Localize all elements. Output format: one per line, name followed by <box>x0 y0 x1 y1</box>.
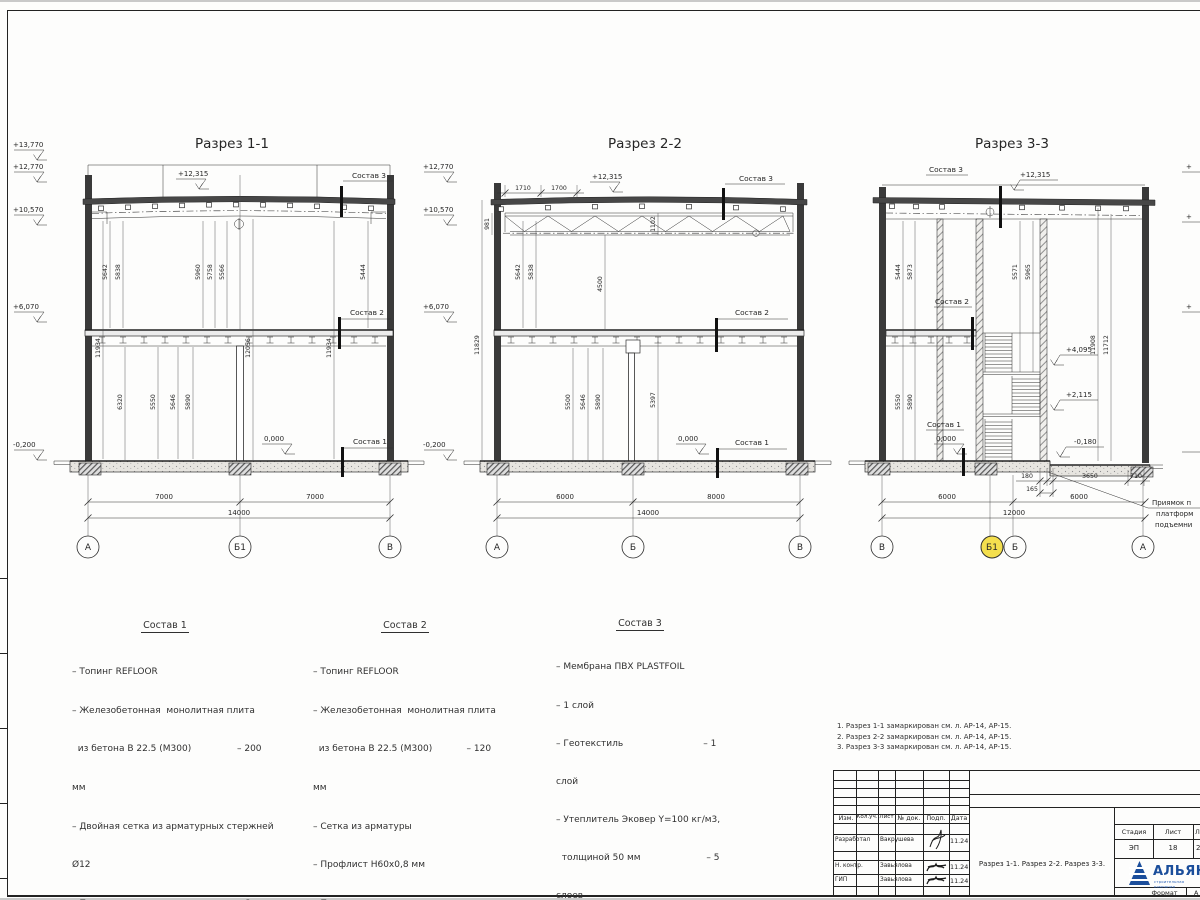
section-title: Разрез 1-1 <box>195 136 269 152</box>
callout-label: Состав 1 <box>353 437 387 446</box>
tb-col-header: Дата <box>949 814 969 822</box>
composition-line: слоев <box>556 890 751 900</box>
dim-label: 6000 <box>556 493 574 501</box>
roof-slab <box>491 197 807 205</box>
axis-bubble-label: Б <box>1012 543 1018 553</box>
elevation-mark-cut: + <box>1186 213 1192 221</box>
elevation-mark: -0,200 <box>13 441 36 449</box>
dim-label: 5890 <box>595 394 602 410</box>
column <box>629 353 635 463</box>
column <box>237 346 244 463</box>
callout-label: Состав 2 <box>935 297 969 306</box>
dim-label: 1710 <box>515 185 531 192</box>
dim-label: 5444 <box>895 264 902 280</box>
callout-label: Состав 2 <box>350 308 384 317</box>
dim-label: 5873 <box>907 264 914 280</box>
composition-line: Ø12 <box>72 859 274 872</box>
dim-label: 8000 <box>707 493 725 501</box>
dim-label: 7000 <box>155 493 173 501</box>
dim-label: 1102 <box>650 216 657 232</box>
axis-bubble-label: А <box>1140 543 1147 553</box>
dim-label: 5890 <box>907 394 914 410</box>
elevation-mark-cut: + <box>1186 303 1192 311</box>
pit-note: подъемни <box>1155 521 1192 529</box>
column-cap <box>626 340 640 353</box>
note-line: 1. Разрез 1-1 замаркирован см. л. АР-14,… <box>837 721 1011 732</box>
composition-line: из бетона В 22.5 (М300) – 120 <box>313 743 496 756</box>
title-block: Изм. Кол.уч. Лист № док. Подп. Дата Разр… <box>833 770 1200 897</box>
composition-line: мм <box>313 782 496 795</box>
dim-label: 11934 <box>326 338 333 358</box>
wall <box>976 219 983 463</box>
foundation <box>487 463 509 475</box>
callout-bar <box>999 186 1002 228</box>
dim-label: 11934 <box>95 338 102 358</box>
callout-bar <box>716 448 719 478</box>
composition-line: слой <box>556 776 751 789</box>
elevation-mark: +13,770 <box>13 141 43 149</box>
elevation-mark: -0,180 <box>1074 438 1097 446</box>
elevation-mark: +10,570 <box>13 206 43 214</box>
elevation-mark: +2,115 <box>1066 391 1092 399</box>
composition-line: – Профлист Н60х0,8 мм <box>313 859 496 872</box>
dim-label: 12056 <box>245 338 252 358</box>
foundation <box>786 463 808 475</box>
tb-sheet-value: 18 <box>1153 844 1193 852</box>
logo-subtitle: строительная компания <box>1154 879 1200 889</box>
dim-label: 5642 <box>515 264 522 280</box>
tb-date: 11.24 <box>950 877 968 885</box>
elevation-mark: +12,770 <box>13 163 43 171</box>
signature <box>925 861 949 874</box>
dim-label: 14000 <box>637 509 659 517</box>
tb-stage-label: Стадия <box>1115 828 1153 836</box>
elevation-mark: +12,770 <box>423 163 453 171</box>
elevation-mark: +4,095 <box>1066 346 1092 354</box>
tb-date: 11.24 <box>950 837 968 845</box>
section-title: Разрез 2-2 <box>608 136 682 152</box>
column <box>879 187 886 463</box>
pit-note: платформ <box>1156 510 1193 518</box>
column <box>797 183 804 463</box>
elevation-mark: 0,000 <box>264 435 284 443</box>
signature <box>926 827 948 851</box>
callout-label: Состав 3 <box>929 165 963 174</box>
floor-slab <box>886 330 976 336</box>
tb-sheets-value: 2 <box>1196 844 1200 852</box>
floor-slab <box>85 330 393 336</box>
tb-role: ГИП <box>835 877 879 883</box>
axis-bubble-label: В <box>879 543 885 553</box>
axis-bubble-label: Б1 <box>986 543 998 553</box>
callout-label: Состав 2 <box>735 308 769 317</box>
dim-label: 5646 <box>170 394 177 410</box>
composition-line: – Утеплитель Эковер Y=100 кг/м3, <box>556 814 751 827</box>
note-line: 3. Разрез 3-3 замаркирован см. л. АР-14,… <box>837 742 1011 753</box>
dim-label: 5397 <box>650 392 657 408</box>
callout-bar <box>715 318 718 352</box>
stair <box>983 333 1040 461</box>
dim-label: 6000 <box>938 493 956 501</box>
ground-slab <box>865 461 1050 472</box>
composition-line: – Топинг REFLOOR <box>72 666 274 679</box>
composition-1: – Топинг REFLOOR – Железобетонная моноли… <box>72 640 274 900</box>
dim-label: 5571 <box>1012 264 1019 280</box>
axis-bubble-label: А <box>85 543 92 553</box>
dim-label: 12000 <box>1003 509 1025 517</box>
composition-line: – Железобетонная монолитная плита <box>72 705 274 718</box>
tb-format-value: А <box>1194 889 1200 897</box>
dim-label: 5890 <box>185 394 192 410</box>
note-line: 2. Разрез 2-2 замаркирован см. л. АР-14,… <box>837 732 1011 743</box>
composition-line: – Геотекстиль – 1 <box>556 738 751 751</box>
dim-label: 5642 <box>102 264 109 280</box>
dim-label: 5550 <box>895 394 902 410</box>
section-title: Разрез 3-3 <box>975 136 1049 152</box>
dim-label: 5566 <box>219 264 226 280</box>
tb-stage-value: ЭП <box>1115 844 1153 852</box>
column <box>1142 187 1149 463</box>
section-3-3: Разрез 3-3 Приямок п платформ подъемни 1… <box>849 136 1200 558</box>
callout-bar <box>341 447 344 477</box>
dim-label: 5758 <box>207 264 214 280</box>
tb-name: Завьялова <box>880 863 922 869</box>
composition-2-title: Состав 2 <box>330 620 480 631</box>
composition-2: – Топинг REFLOOR – Железобетонная моноли… <box>313 640 496 900</box>
callout-label: Состав 1 <box>735 438 769 447</box>
callout-bar <box>338 317 341 349</box>
tb-col-header: № док. <box>895 814 923 822</box>
tb-sheets-label: Листов <box>1195 828 1200 836</box>
dim-label: 165 <box>1026 486 1038 493</box>
truss-diagonals <box>505 216 790 232</box>
axis-bubble-label: Б1 <box>234 543 246 553</box>
dim-label: 11712 <box>1103 335 1110 355</box>
composition-3: – Мембрана ПВХ PLASTFOIL – 1 слой – Геот… <box>556 636 751 900</box>
elevation-mark: +12,315 <box>1020 171 1050 179</box>
tb-name: Завьялова <box>880 877 922 883</box>
callout-bar <box>971 317 974 350</box>
callout-bar <box>340 186 343 217</box>
section-2-2: Разрез 2-2 6000 8000 14000 А Б В 1710 17… <box>423 136 831 558</box>
logo-icon <box>1128 860 1151 886</box>
dim-label: 5965 <box>1025 264 1032 280</box>
composition-line: – Сетка из арматуры <box>313 821 496 834</box>
drawing-sheet: Разрез 1-1 7000 7000 14000 А Б1 В 5642 5… <box>0 0 1200 900</box>
elevation-mark: +6,070 <box>423 303 449 311</box>
dim-label: 3650 <box>1082 473 1098 480</box>
dim-label: 981 <box>484 218 491 230</box>
roof-slab <box>83 196 395 204</box>
elevation-mark: +12,315 <box>178 170 208 178</box>
tb-col-header: Изм. <box>836 814 856 822</box>
composition-line: – Двойная сетка из арматурных стержней <box>72 821 274 834</box>
tb-sheet-label: Лист <box>1153 828 1193 836</box>
dim-label: 7000 <box>306 493 324 501</box>
column <box>85 175 92 463</box>
dim-label: 5444 <box>360 264 367 280</box>
elevation-mark-cut: + <box>1186 163 1192 171</box>
elevation-mark: +6,070 <box>13 303 39 311</box>
elevation-mark: 0,000 <box>936 435 956 443</box>
ground-slab <box>480 461 815 472</box>
dim-label: 5646 <box>580 394 587 410</box>
callout-label: Состав 3 <box>352 171 386 180</box>
elevation-mark: +12,315 <box>592 173 622 181</box>
composition-1-title: Состав 1 <box>85 620 245 631</box>
composition-line: – Топинг REFLOOR <box>313 666 496 679</box>
floor-slab <box>494 330 804 336</box>
dim-label: 5960 <box>195 264 202 280</box>
dim-label: 5500 <box>565 394 572 410</box>
composition-line: – Железобетонная монолитная плита <box>313 705 496 718</box>
wall <box>1040 219 1047 465</box>
composition-line: – Мембрана ПВХ PLASTFOIL <box>556 661 751 674</box>
tb-date: 11.24 <box>950 863 968 871</box>
composition-line: – 1 слой <box>556 700 751 713</box>
tb-col-header: Кол.уч. <box>856 814 878 820</box>
axis-bubble-label: А <box>494 543 501 553</box>
foundation <box>229 463 251 475</box>
composition-line: из бетона В 22.5 (М300) – 200 <box>72 743 274 756</box>
axis-bubble-label: В <box>797 543 803 553</box>
tb-doc-title: Разрез 1-1. Разрез 2-2. Разрез 3-3. <box>971 860 1113 868</box>
composition-line: мм <box>72 782 274 795</box>
foundation <box>379 463 401 475</box>
dim-label: 5838 <box>528 264 535 280</box>
elevation-mark: 0,000 <box>678 435 698 443</box>
foundation <box>975 463 997 475</box>
dim-label: 14000 <box>228 509 250 517</box>
composition-line: толщиной 50 мм – 5 <box>556 852 751 865</box>
dim-label: 710 <box>1130 473 1142 480</box>
foundation <box>622 463 644 475</box>
dim-label: 11829 <box>474 335 481 355</box>
elevation-mark: -0,200 <box>423 441 446 449</box>
dim-label: 6000 <box>1070 493 1088 501</box>
axis-bubble-label: В <box>387 543 393 553</box>
composition-3-title: Состав 3 <box>570 618 710 629</box>
foundation <box>79 463 101 475</box>
pit-note: Приямок п <box>1152 499 1191 507</box>
tb-format-label: Формат <box>1144 889 1185 897</box>
dim-label: 6320 <box>117 394 124 410</box>
callout-label: Состав 3 <box>739 174 773 183</box>
logo-text: АЛЬЯНС <box>1153 864 1200 879</box>
sheet-notes: 1. Разрез 1-1 замаркирован см. л. АР-14,… <box>837 721 1011 753</box>
signature <box>925 874 949 887</box>
dim-label: 5550 <box>150 394 157 410</box>
section-1-1: Разрез 1-1 7000 7000 14000 А Б1 В 5642 5… <box>13 136 424 558</box>
dim-label: 5838 <box>115 264 122 280</box>
callout-bar <box>722 188 725 220</box>
elevation-mark: +10,570 <box>423 206 453 214</box>
dim-label: 1700 <box>551 185 567 192</box>
axis-bubble-label: Б <box>630 543 636 553</box>
column <box>494 183 501 463</box>
tb-name: Вакрушева <box>880 837 922 843</box>
dim-label: 4500 <box>597 276 604 292</box>
callout-bar <box>962 448 965 476</box>
tb-role: Разработал <box>835 837 879 843</box>
dim-label: 180 <box>1021 473 1033 480</box>
foundation <box>868 463 890 475</box>
tb-col-header: Подп. <box>923 814 949 822</box>
callout-label: Состав 1 <box>927 420 961 429</box>
tb-role: Н. контр. <box>835 863 879 869</box>
tb-col-header: Лист <box>878 814 895 820</box>
